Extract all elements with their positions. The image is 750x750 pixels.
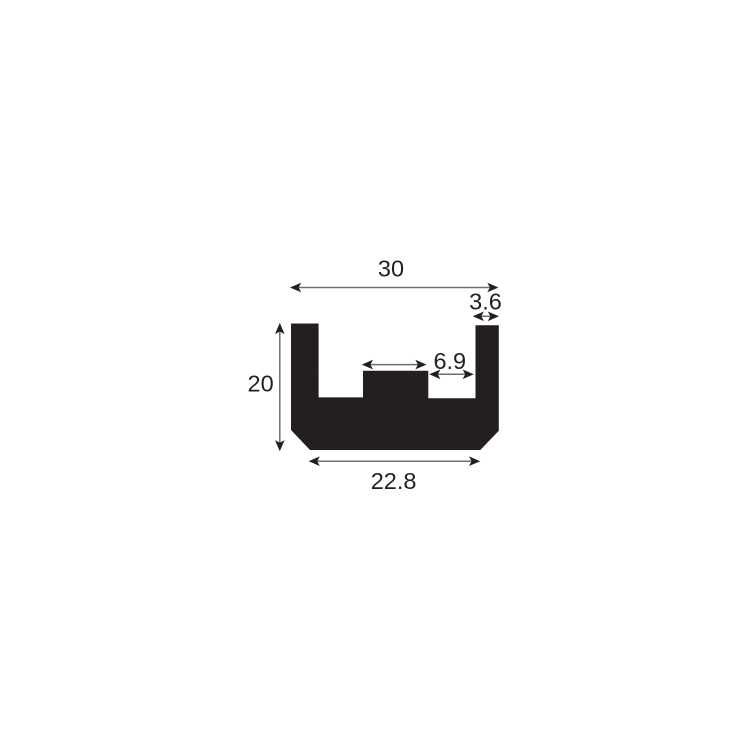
svg-text:30: 30 [378, 255, 404, 281]
svg-text:20: 20 [248, 371, 274, 397]
svg-text:6.9: 6.9 [433, 348, 466, 374]
svg-text:22.8: 22.8 [371, 468, 417, 494]
svg-text:3.6: 3.6 [469, 289, 502, 315]
